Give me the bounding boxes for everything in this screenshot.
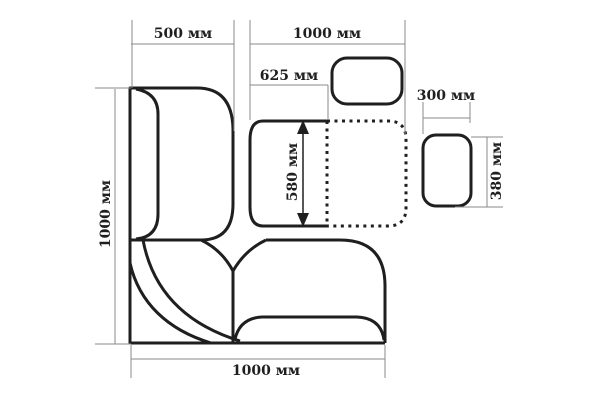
corner-frame-outline: [130, 240, 385, 343]
dimension-diagram: 500 мм 1000 мм 625 мм 300 мм 380 мм 580 …: [0, 0, 600, 400]
dim-label-stool-width: 300 мм: [417, 88, 475, 104]
extension-module-dotted-outline: [327, 121, 406, 226]
corner-seat-inner-seam: [143, 240, 240, 341]
dim-label-top-width: 1000 мм: [293, 26, 361, 42]
table-top-outline: [332, 58, 402, 104]
corner-sofa: [130, 88, 385, 343]
dim-label-seat-depth: 580 мм: [285, 143, 301, 201]
bottom-bench-cushion-line: [235, 317, 384, 340]
diagram-canvas: 500 мм 1000 мм 625 мм 300 мм 380 мм 580 …: [0, 0, 600, 400]
dim-label-bottom-width: 1000 мм: [232, 363, 300, 379]
dim-label-backrest-depth: 500 мм: [154, 26, 212, 42]
dim-label-left-height: 1000 мм: [98, 180, 114, 248]
left-bench-cushion-line: [136, 89, 158, 239]
left-bench-outline: [130, 88, 233, 240]
dim-label-table-offset: 625 мм: [260, 68, 318, 84]
dim-label-stool-depth: 380 мм: [489, 142, 505, 200]
dim-table-offset-line: [250, 85, 328, 120]
dim-stool-width-line: [423, 102, 470, 134]
backrest-junction-v-seam: [201, 240, 266, 271]
bottom-bench-outline: [266, 240, 385, 343]
corner-seat-outer-seam: [130, 263, 211, 343]
stool-outline: [423, 135, 471, 206]
